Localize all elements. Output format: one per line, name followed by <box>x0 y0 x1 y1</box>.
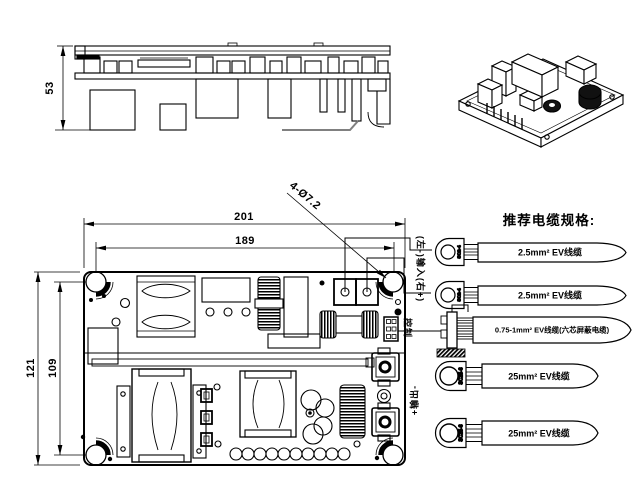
cable-5-label: 25mm² EV线缆 <box>508 427 570 440</box>
iso-view-drawing <box>459 54 623 147</box>
drawing-canvas: SC2-4 SC2-4 <box>0 0 632 482</box>
hole-pitch-v-dim-label: 109 <box>47 358 59 378</box>
cable-5-lug-label: SC25-6 <box>459 424 465 441</box>
input-terminal-blocks <box>334 279 378 305</box>
control-label: 控制 <box>402 318 415 338</box>
transformer-top-left <box>137 276 195 337</box>
width-dim-label: 201 <box>234 211 254 223</box>
cable-spec-title: 推荐电缆规格: <box>503 209 596 229</box>
cable-4-lug-label: SC25-6 <box>459 367 465 384</box>
cable-3-label: 0.75-1mm² EV线缆(六芯屏蔽电缆) <box>495 325 609 336</box>
transformer-bottom-middle <box>240 371 296 437</box>
side-view-drawing <box>75 43 390 130</box>
height-dim-label: 121 <box>25 358 37 378</box>
output-terminal-blocks <box>372 348 399 441</box>
board-top-view <box>81 272 405 465</box>
cable-4-label: 25mm² EV线缆 <box>508 370 570 383</box>
cable-2-label: 2.5mm² EV线缆 <box>518 289 582 302</box>
hole-pitch-h-dim-label: 189 <box>235 235 255 247</box>
cable-1-label: 2.5mm² EV线缆 <box>518 246 582 259</box>
cable-1-lug-label: SC2-4 <box>457 245 462 258</box>
cable-2-lug-label: SC2-4 <box>457 288 462 301</box>
output-polarity-label: +输出- <box>408 385 421 415</box>
control-header <box>384 317 398 341</box>
engineering-drawing-page: SC2-4 SC2-4 <box>0 0 632 482</box>
bottom-circle-row <box>230 448 350 460</box>
transformer-bottom-left <box>117 369 206 462</box>
cable-drawings: SC2-4 SC2-4 <box>436 239 632 448</box>
input-polarity-label: (左-)输入(右+) <box>415 236 428 302</box>
side-height-dim-label: 53 <box>44 81 56 94</box>
